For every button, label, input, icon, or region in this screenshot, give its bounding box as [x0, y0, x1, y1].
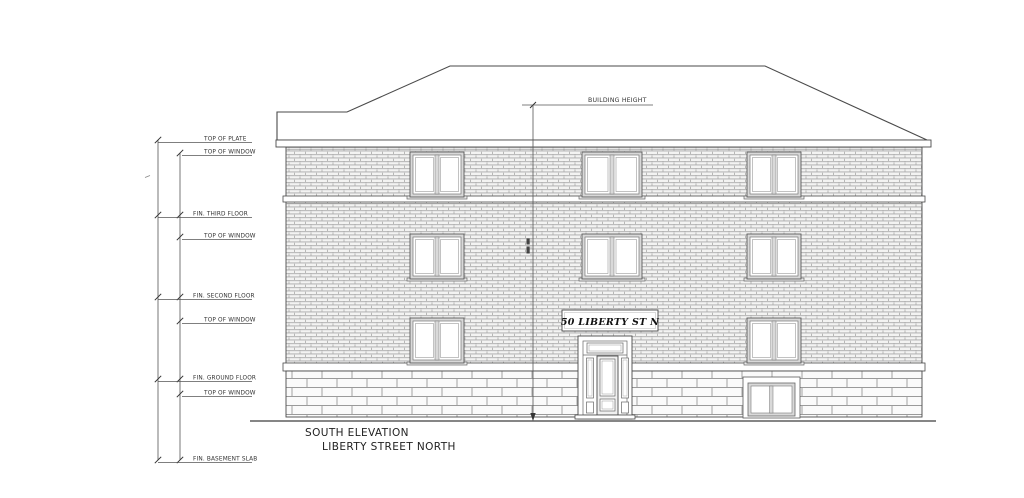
entrance-door: [575, 336, 635, 419]
window-second-floor-right: [744, 234, 804, 281]
label-fin-ground-floor: FIN. GROUND FLOOR: [193, 376, 256, 382]
window-third-floor-centre: [579, 152, 645, 199]
title-line-1: SOUTH ELEVATION: [305, 427, 409, 439]
label-top-of-window-2f: TOP OF WINDOW: [203, 234, 256, 240]
window-basement-right: [743, 377, 800, 418]
label-fin-third-floor: FIN. THIRD FLOOR: [193, 212, 248, 218]
label-top-of-window-3f: TOP OF WINDOW: [203, 150, 256, 156]
window-ground-floor-right: [744, 318, 804, 365]
title-line-2: LIBERTY STREET NORTH: [322, 441, 456, 453]
address-sign-text: 50 LIBERTY ST N: [561, 317, 659, 328]
label-top-of-window-bsmt: TOP OF WINDOW: [203, 391, 256, 397]
label-top-of-window-gf: TOP OF WINDOW: [203, 318, 256, 324]
window-ground-floor-left: [407, 318, 467, 365]
address-sign: 50 LIBERTY ST N: [561, 310, 659, 331]
label-leader-lines: [158, 143, 252, 463]
label-top-of-plate: TOP OF PLATE: [203, 137, 247, 143]
door-sidelight-right: [622, 358, 629, 398]
window-second-floor-centre: [579, 234, 645, 281]
label-fin-second-floor: FIN. SECOND FLOOR: [193, 294, 255, 300]
stray-mark: [145, 176, 150, 178]
eave-fascia: [276, 140, 931, 147]
window-third-floor-left: [407, 152, 467, 199]
window-second-floor-left: [407, 234, 467, 281]
door-sidelight-left: [587, 358, 594, 398]
window-third-floor-right: [744, 152, 804, 199]
elevation-drawing-sheet: 50 LIBERTY ST N BUILDING HEIGHT: [0, 0, 1024, 498]
building-height-label: BUILDING HEIGHT: [588, 97, 647, 104]
door-threshold: [575, 415, 635, 419]
drawing-title: SOUTH ELEVATION LIBERTY STREET NORTH: [305, 427, 456, 453]
left-dimension-lines: TOP OF PLATE TOP OF WINDOW FIN. THIRD FL…: [145, 137, 257, 464]
south-elevation-drawing: 50 LIBERTY ST N BUILDING HEIGHT: [0, 0, 1024, 498]
label-fin-basement-slab: FIN. BASEMENT SLAB: [193, 457, 257, 463]
